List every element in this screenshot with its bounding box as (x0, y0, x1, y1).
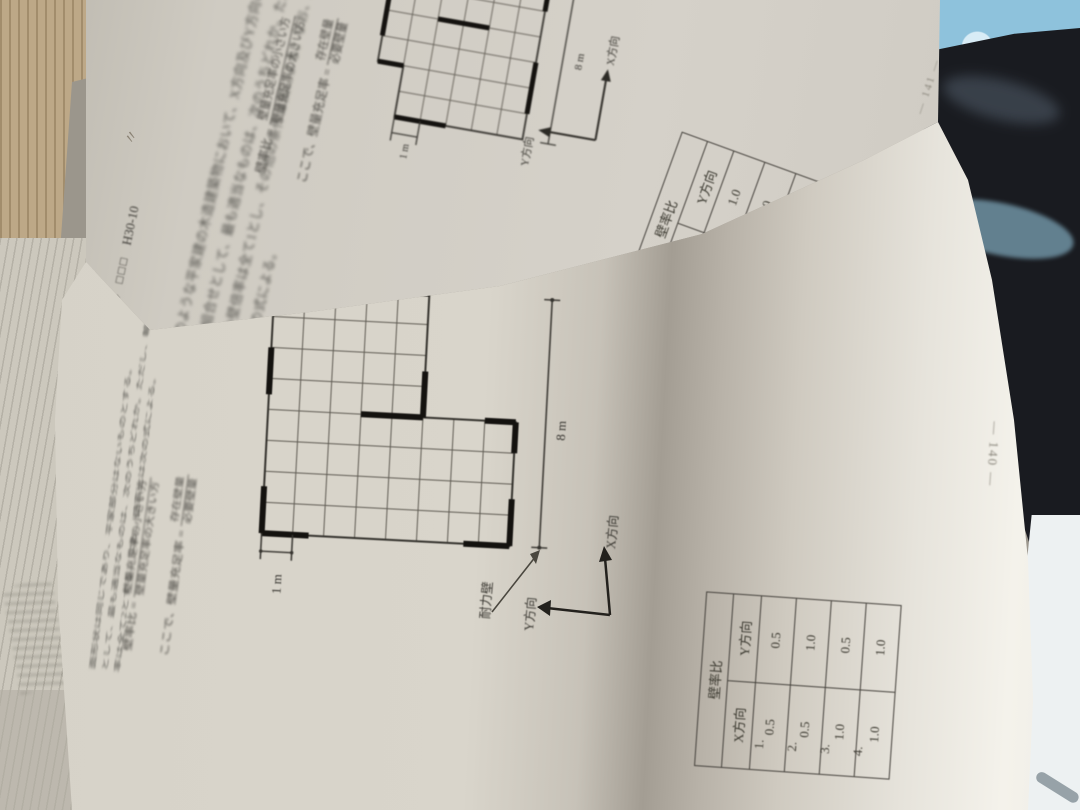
book-photo-scene: 44 □□□ H30-10 〃 のような平家建の木造建築物において、X方向及びY… (0, 0, 1080, 810)
